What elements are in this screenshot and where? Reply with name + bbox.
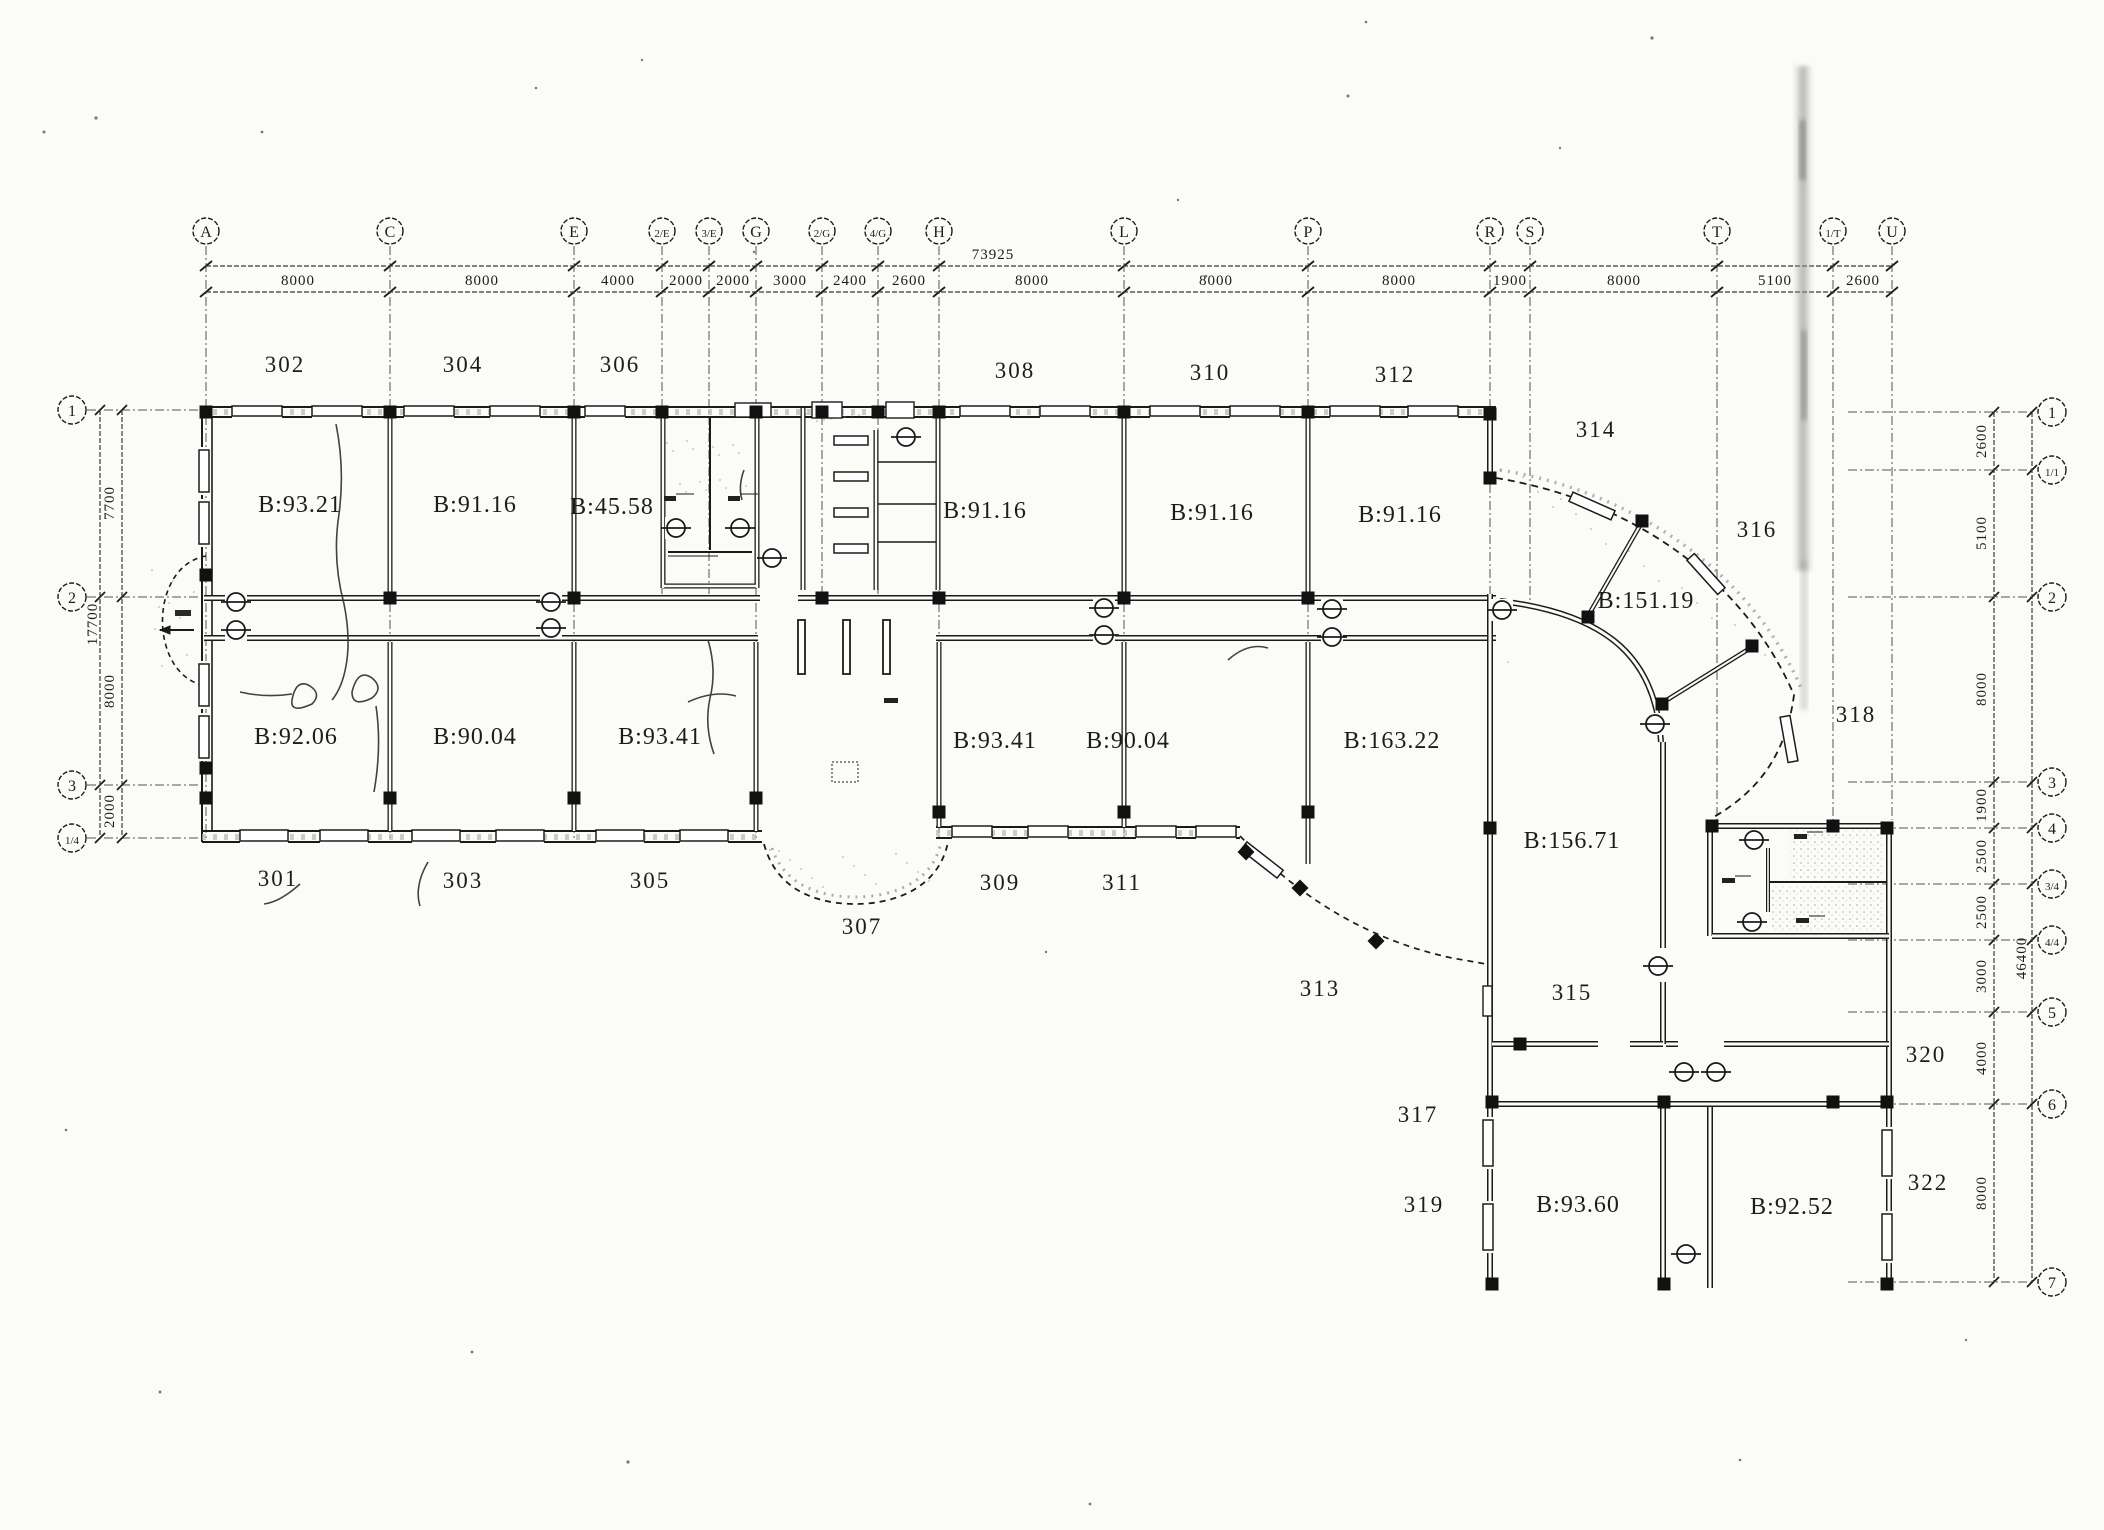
window [412, 830, 460, 841]
column [656, 406, 669, 419]
window [1136, 826, 1176, 837]
window [952, 826, 992, 837]
column [1658, 1096, 1671, 1109]
room-area: B:93.41 [618, 724, 702, 750]
curved-terrace-wall [1240, 836, 1486, 964]
dim-top: 1900 [1493, 273, 1527, 289]
room-area: B:91.16 [943, 498, 1027, 524]
grid-label-1/4: 1/4 [65, 835, 80, 847]
room-number: 318 [1836, 702, 1877, 727]
window [680, 830, 728, 841]
column-diamond [1292, 880, 1309, 897]
window [199, 502, 209, 544]
room-area: B:93.41 [953, 728, 1037, 754]
room-number: 309 [980, 870, 1021, 895]
column [1302, 592, 1315, 605]
dim-top: 8000 [1382, 273, 1416, 289]
window [1196, 826, 1236, 837]
room-number: 312 [1375, 362, 1416, 387]
column [384, 792, 397, 805]
window [199, 450, 209, 492]
dim-left: 7700 [102, 486, 118, 520]
window [1882, 1130, 1892, 1176]
grid-label-5: 5 [2048, 1005, 2056, 1022]
column [750, 406, 763, 419]
walls [160, 407, 1889, 1288]
column [1656, 698, 1669, 711]
column [933, 592, 946, 605]
room-area: B:91.16 [1358, 502, 1442, 528]
grid-label-2: 2 [68, 590, 76, 607]
room-area: B:91.16 [433, 492, 517, 518]
dim-right: 8000 [1974, 672, 1990, 706]
grid-label-G: G [750, 224, 762, 241]
window [1330, 406, 1380, 416]
grid-label-U: U [1886, 224, 1898, 241]
room-number: 314 [1576, 417, 1617, 442]
dim-right: 4000 [1974, 1041, 1990, 1075]
room-number: 311 [1102, 870, 1142, 895]
column [1746, 640, 1759, 653]
column [750, 792, 763, 805]
grid-label-1: 1 [68, 403, 76, 420]
dim-top: 8000 [1015, 273, 1049, 289]
dim-right: 1900 [1974, 788, 1990, 822]
column [1706, 820, 1719, 833]
room-number: 322 [1908, 1170, 1949, 1195]
window [596, 830, 644, 841]
window [1028, 826, 1068, 837]
scanned-floor-plan-page: ACE2/E3/EG2/G4/GHLPRST1/TU1231/411/12343… [0, 0, 2104, 1530]
room-number: 302 [265, 352, 306, 377]
grid-label-4/4: 4/4 [2045, 937, 2060, 949]
column [568, 406, 581, 419]
dim-right: 2500 [1974, 839, 1990, 873]
grid-label-7: 7 [2048, 1275, 2056, 1292]
dim-top: 8000 [281, 273, 315, 289]
illegible-note [175, 610, 191, 616]
grid-label-E: E [569, 224, 579, 241]
room-number: 316 [1737, 517, 1778, 542]
grid-system: ACE2/E3/EG2/G4/GHLPRST1/TU1231/411/12343… [58, 218, 2066, 1296]
window-curved [1569, 492, 1615, 520]
room-number: 317 [1398, 1102, 1439, 1127]
lobby-pilaster [798, 620, 805, 674]
dim-top: 2600 [892, 273, 926, 289]
overall-dim-right: 46400 [2014, 937, 2030, 980]
column [568, 592, 581, 605]
dim-top: 2000 [716, 273, 750, 289]
window [232, 406, 282, 416]
room-number: 315 [1552, 980, 1593, 1005]
room-area: B:91.16 [1170, 500, 1254, 526]
column [1486, 1096, 1499, 1109]
column [816, 592, 829, 605]
room-area: B:45.58 [570, 494, 654, 520]
grid-label-S: S [1526, 224, 1535, 241]
column [1881, 1096, 1894, 1109]
specks [43, 21, 1968, 1506]
column [1514, 1038, 1527, 1051]
grid-label-A: A [200, 224, 212, 241]
door-leaf [1483, 986, 1492, 1016]
column [1486, 1278, 1499, 1291]
room-number: 301 [258, 866, 299, 891]
column-diamond [1368, 933, 1385, 950]
room-area: B:90.04 [433, 724, 517, 750]
room-area: B:92.06 [254, 724, 338, 750]
window [1230, 406, 1280, 416]
grid-label-1/1: 1/1 [2045, 467, 2059, 479]
column [1484, 472, 1497, 485]
dim-right: 2500 [1974, 895, 1990, 929]
grid-label-1/T: 1/T [1825, 228, 1841, 240]
room-number: 308 [995, 358, 1036, 383]
column [1636, 515, 1649, 528]
grid-label-P: P [1304, 224, 1313, 241]
grid-label-4/G: 4/G [870, 228, 887, 240]
window [585, 406, 625, 416]
column [200, 762, 213, 775]
room-labels: 3023043063083103123013033053073093113133… [254, 352, 1948, 1220]
floor-plan-drawing: ACE2/E3/EG2/G4/GHLPRST1/TU1231/411/12343… [0, 0, 2104, 1530]
column [1118, 406, 1131, 419]
column [1118, 806, 1131, 819]
window [404, 406, 454, 416]
grid-label-1: 1 [2048, 405, 2056, 422]
column [200, 406, 213, 419]
column [933, 406, 946, 419]
window [960, 406, 1010, 416]
dim-top: 3000 [773, 273, 807, 289]
column [1827, 1096, 1840, 1109]
dim-top: 2600 [1846, 273, 1880, 289]
windows [151, 402, 1892, 1263]
lobby-pilaster [843, 620, 850, 674]
room-area: B:93.21 [258, 492, 342, 518]
dim-top: 8000 [1607, 273, 1641, 289]
column [1484, 408, 1497, 421]
grid-label-T: T [1712, 224, 1722, 241]
grid-label-2: 2 [2048, 590, 2056, 607]
column [1302, 406, 1315, 419]
grid-label-4: 4 [2048, 821, 2056, 838]
room-area: B:93.60 [1536, 1192, 1620, 1218]
floor-mat [832, 762, 858, 782]
dim-top: 4000 [601, 273, 635, 289]
dim-top: 8000 [465, 273, 499, 289]
grid-label-3: 3 [2048, 775, 2056, 792]
window [490, 406, 540, 416]
grid-label-3: 3 [68, 778, 76, 795]
room-number: 307 [842, 914, 883, 939]
dim-right: 8000 [1974, 1176, 1990, 1210]
fixture-notes [664, 496, 1809, 923]
window [199, 664, 209, 706]
column [384, 592, 397, 605]
column [384, 406, 397, 419]
scan-artifacts [43, 21, 1968, 1506]
window [1882, 1214, 1892, 1260]
dim-top: 2000 [669, 273, 703, 289]
entrance-canopy-arc [764, 842, 948, 904]
room-number: 320 [1906, 1042, 1947, 1067]
structural-columns [200, 406, 1894, 1291]
room-area: B:156.71 [1524, 828, 1621, 854]
lobby-pilaster [883, 620, 890, 674]
room-number: 304 [443, 352, 484, 377]
dim-left: 8000 [102, 674, 118, 708]
window [1483, 1120, 1493, 1166]
window [320, 830, 368, 841]
grid-label-L: L [1119, 224, 1129, 241]
column [1582, 611, 1595, 624]
window [312, 406, 362, 416]
grid-label-2/G: 2/G [814, 228, 831, 240]
room-area: B:92.52 [1750, 1194, 1834, 1220]
dim-top: 2400 [833, 273, 867, 289]
overall-dim-left: 17700 [85, 603, 101, 646]
grid-label-3/E: 3/E [701, 228, 717, 240]
room-number: 310 [1190, 360, 1231, 385]
grid-label-6: 6 [2048, 1097, 2056, 1114]
window [1150, 406, 1200, 416]
room-area: B:163.22 [1344, 728, 1441, 754]
column [1881, 822, 1894, 835]
column [200, 792, 213, 805]
room-area: B:90.04 [1086, 728, 1170, 754]
grid-label-H: H [933, 224, 945, 241]
grid-label-3/4: 3/4 [2045, 881, 2060, 893]
overall-dim-top: 73925 [972, 247, 1015, 263]
window [496, 830, 544, 841]
window-curved [1780, 715, 1798, 762]
room-number: 313 [1300, 976, 1341, 1001]
dim-left: 2000 [102, 794, 118, 828]
window [1040, 406, 1090, 416]
grid-label-C: C [385, 224, 396, 241]
column [872, 406, 885, 419]
column [1881, 1278, 1894, 1291]
grid-label-2/E: 2/E [654, 228, 670, 240]
room-number: 305 [630, 868, 671, 893]
window [1483, 1204, 1493, 1250]
window [240, 830, 288, 841]
dim-top: 5100 [1758, 273, 1792, 289]
column [1827, 820, 1840, 833]
window [1408, 406, 1458, 416]
dim-right: 3000 [1974, 959, 1990, 993]
column [568, 792, 581, 805]
grid-label-R: R [1485, 224, 1496, 241]
column [816, 406, 829, 419]
dim-right: 2600 [1974, 424, 1990, 458]
room-number: 306 [600, 352, 641, 377]
column [1658, 1278, 1671, 1291]
column [1302, 806, 1315, 819]
dim-top: 8000 [1199, 273, 1233, 289]
column [1118, 592, 1131, 605]
dimension-texts: 7392580008000400020002000300024002600800… [85, 247, 2030, 1210]
dim-right: 5100 [1974, 516, 1990, 550]
room-number: 303 [443, 868, 484, 893]
column [200, 569, 213, 582]
room-area: B:151.19 [1598, 588, 1695, 614]
column [1484, 822, 1497, 835]
window [199, 716, 209, 758]
column [933, 806, 946, 819]
door-leaf [886, 402, 914, 418]
room-number: 319 [1404, 1192, 1445, 1217]
